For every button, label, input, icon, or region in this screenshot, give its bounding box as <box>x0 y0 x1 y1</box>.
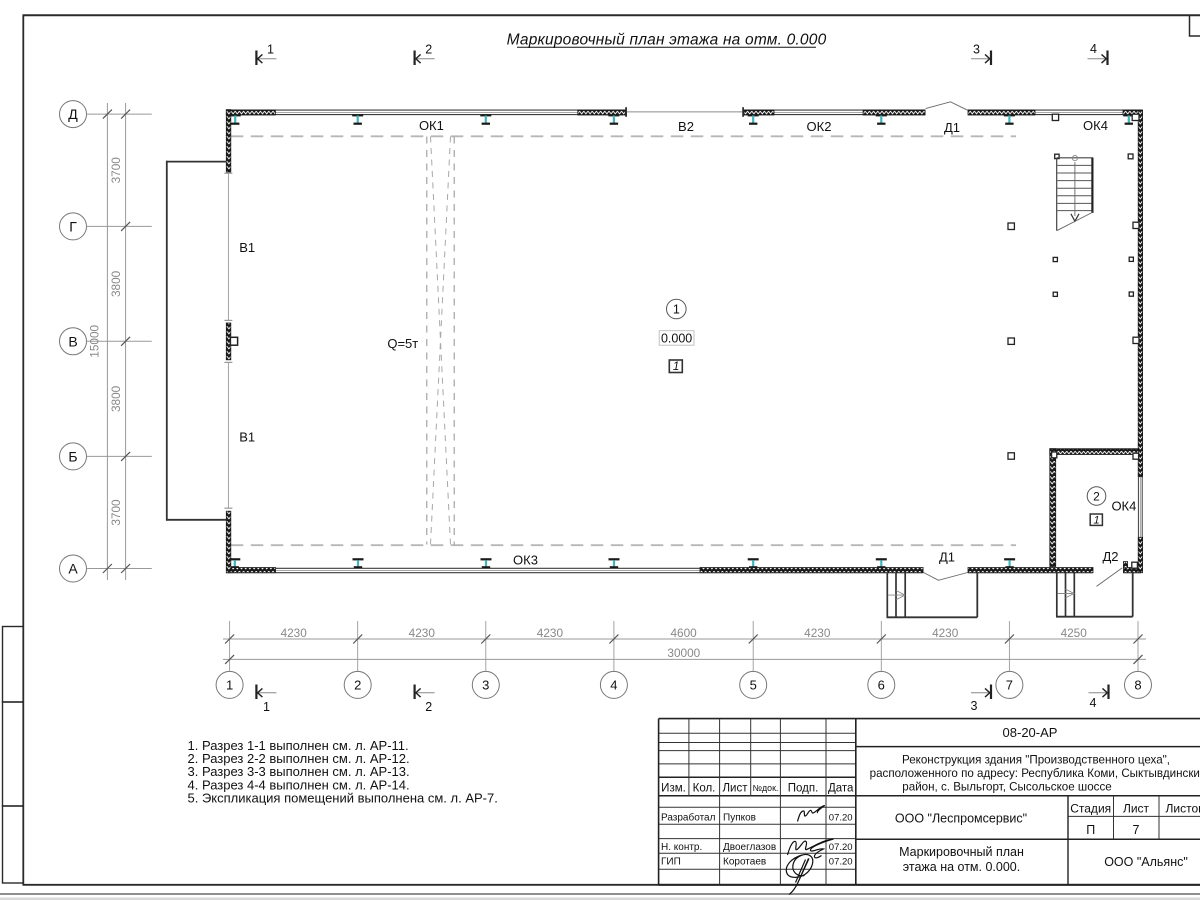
svg-text:Листов: Листов <box>1166 801 1200 815</box>
svg-text:1: 1 <box>263 700 270 714</box>
svg-text:0.000: 0.000 <box>661 332 692 346</box>
svg-text:4250: 4250 <box>1061 626 1088 640</box>
svg-text:Разработал: Разработал <box>661 811 716 823</box>
svg-text:5: 5 <box>750 678 757 693</box>
svg-text:1: 1 <box>267 43 274 57</box>
svg-text:Лист: Лист <box>723 783 749 795</box>
svg-text:Пупков: Пупков <box>723 812 756 823</box>
svg-text:1: 1 <box>673 303 680 317</box>
svg-text:ОК4: ОК4 <box>1083 118 1108 133</box>
svg-text:2: 2 <box>1093 490 1100 504</box>
svg-text:Двоеглазов: Двоеглазов <box>723 842 776 853</box>
svg-text:Д1: Д1 <box>944 120 960 135</box>
svg-text:Маркировочный план: Маркировочный план <box>899 845 1024 859</box>
svg-text:Лист: Лист <box>1123 801 1150 815</box>
svg-text:3: 3 <box>971 699 978 713</box>
svg-text:4230: 4230 <box>932 626 959 640</box>
svg-text:Q=5т: Q=5т <box>387 336 418 351</box>
svg-text:ООО "Леспромсервис": ООО "Леспромсервис" <box>895 812 1027 826</box>
svg-text:08-20-АР: 08-20-АР <box>1003 725 1058 740</box>
svg-text:Изм.: Изм. <box>661 783 686 795</box>
svg-text:4: 4 <box>610 678 617 693</box>
svg-text:1: 1 <box>1094 514 1100 526</box>
svg-text:Реконструкция здания "Производ: Реконструкция здания "Производственного … <box>902 753 1170 766</box>
svg-text:7: 7 <box>1006 678 1013 693</box>
svg-text:П: П <box>1086 823 1095 837</box>
svg-text:Д: Д <box>68 106 78 122</box>
svg-text:ОК2: ОК2 <box>807 119 832 134</box>
svg-text:4600: 4600 <box>670 626 697 640</box>
svg-text:7: 7 <box>1133 823 1140 837</box>
svg-text:А: А <box>68 561 78 577</box>
svg-text:07.20: 07.20 <box>829 857 853 868</box>
svg-text:Д1: Д1 <box>939 550 955 565</box>
svg-text:Г: Г <box>69 218 77 234</box>
svg-text:3800: 3800 <box>109 385 123 412</box>
svg-text:4230: 4230 <box>804 626 831 640</box>
svg-text:3800: 3800 <box>109 270 123 297</box>
svg-text:ООО "Альянс": ООО "Альянс" <box>1104 855 1188 869</box>
svg-text:ОК3: ОК3 <box>513 553 538 568</box>
svg-text:Маркировочный план этажа на от: Маркировочный план этажа на отм. 0.000 <box>507 31 827 48</box>
svg-text:расположенного по адресу: Респ: расположенного по адресу: Республика Ком… <box>870 767 1200 780</box>
svg-text:4230: 4230 <box>409 626 436 640</box>
svg-text:1: 1 <box>673 361 679 373</box>
svg-text:07.20: 07.20 <box>829 812 853 823</box>
svg-text:ОК4: ОК4 <box>1111 499 1136 514</box>
svg-text:Стадия: Стадия <box>1070 801 1111 815</box>
svg-text:2: 2 <box>425 43 432 57</box>
svg-text:В1: В1 <box>239 240 255 255</box>
svg-text:район, с. Выльгорт, Сысольское: район, с. Выльгорт, Сысольское шоссе <box>902 781 1111 794</box>
svg-text:3700: 3700 <box>109 157 123 184</box>
svg-text:этажа на отм. 0.000.: этажа на отм. 0.000. <box>903 860 1020 874</box>
svg-text:3: 3 <box>482 678 489 693</box>
svg-text:8: 8 <box>1134 678 1141 693</box>
svg-text:15000: 15000 <box>88 324 102 357</box>
svg-text:Н. контр.: Н. контр. <box>661 842 702 853</box>
svg-text:6: 6 <box>878 678 885 693</box>
svg-text:3: 3 <box>973 43 980 57</box>
svg-text:4230: 4230 <box>537 626 564 640</box>
svg-text:2: 2 <box>354 678 361 693</box>
svg-text:Б: Б <box>68 448 77 464</box>
svg-text:ОК1: ОК1 <box>419 118 444 133</box>
svg-text:Дата: Дата <box>828 783 854 795</box>
svg-text:3700: 3700 <box>109 499 123 526</box>
svg-text:4: 4 <box>1090 42 1097 56</box>
svg-text:07.20: 07.20 <box>829 842 853 853</box>
svg-text:№док.: №док. <box>753 783 779 793</box>
svg-text:4230: 4230 <box>281 626 308 640</box>
svg-text:Подп.: Подп. <box>788 783 819 795</box>
svg-text:В1: В1 <box>239 430 255 445</box>
svg-text:2: 2 <box>425 700 432 714</box>
svg-text:5. Экспликация помещений выпол: 5. Экспликация помещений выполнена см. л… <box>188 790 498 805</box>
svg-text:4: 4 <box>1090 696 1097 710</box>
svg-text:ГИП: ГИП <box>661 857 681 868</box>
svg-text:В2: В2 <box>678 119 694 134</box>
svg-text:Кол.: Кол. <box>693 783 716 795</box>
svg-text:Д2: Д2 <box>1102 549 1118 564</box>
svg-text:В: В <box>68 333 77 349</box>
svg-text:Коротаев: Коротаев <box>723 857 766 868</box>
svg-text:30000: 30000 <box>667 646 700 660</box>
svg-text:1: 1 <box>226 678 233 693</box>
